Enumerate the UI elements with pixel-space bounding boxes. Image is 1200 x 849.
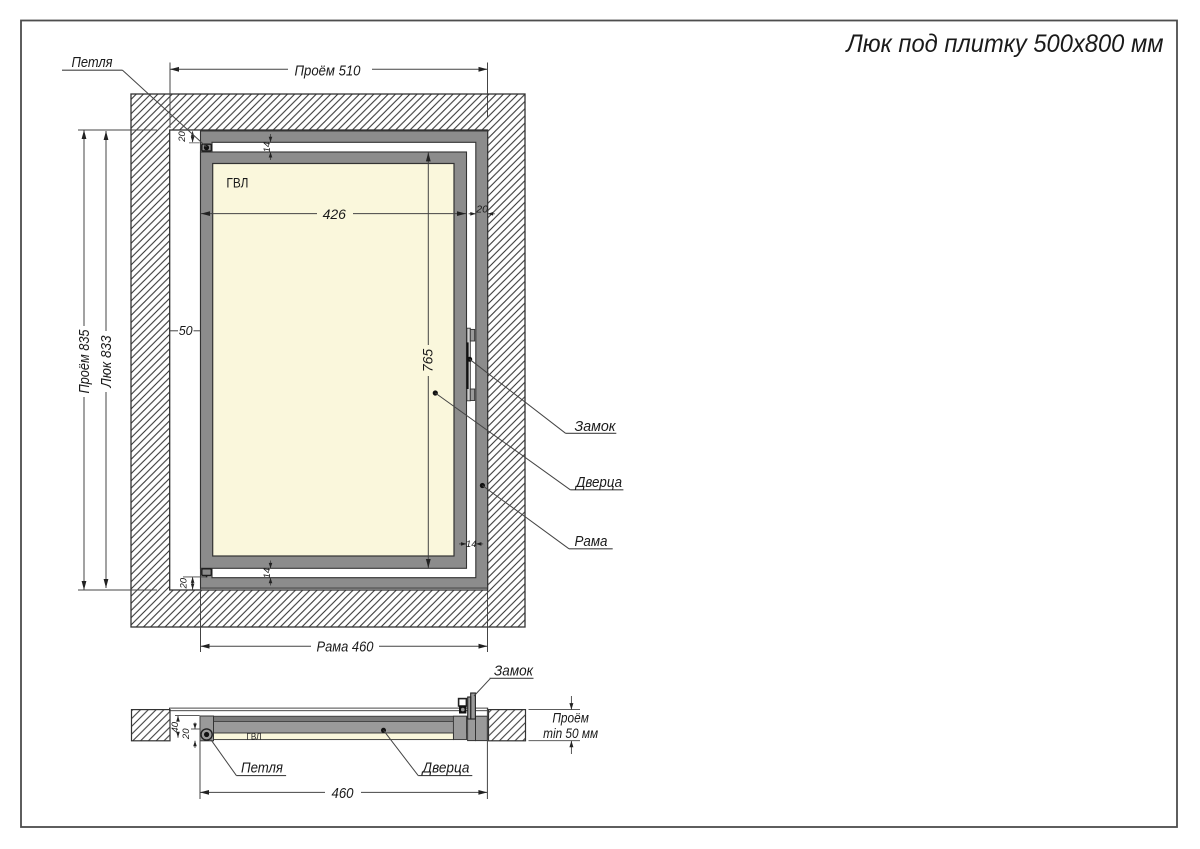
svg-text:ГВЛ: ГВЛ <box>226 175 248 190</box>
svg-text:Дверца: Дверца <box>574 474 622 491</box>
svg-text:Петля: Петля <box>241 760 283 777</box>
svg-text:Дверца: Дверца <box>421 760 470 777</box>
svg-text:Рама: Рама <box>575 533 608 550</box>
svg-text:40: 40 <box>170 721 181 732</box>
svg-text:Люк 833: Люк 833 <box>99 336 115 389</box>
svg-text:50: 50 <box>179 324 193 338</box>
svg-text:14: 14 <box>262 568 273 579</box>
svg-text:20: 20 <box>475 204 488 216</box>
svg-text:426: 426 <box>323 206 347 222</box>
svg-text:min 50 мм: min 50 мм <box>543 726 598 741</box>
svg-text:Люк под плитку 500х800 мм: Люк под плитку 500х800 мм <box>845 30 1164 58</box>
svg-text:ГВЛ: ГВЛ <box>247 731 262 741</box>
svg-text:Проём: Проём <box>552 711 589 726</box>
svg-text:765: 765 <box>420 349 436 373</box>
svg-text:Проём 510: Проём 510 <box>295 64 361 80</box>
svg-text:Рама 460: Рама 460 <box>317 640 374 656</box>
svg-text:20: 20 <box>179 577 190 589</box>
svg-text:Петля: Петля <box>72 54 113 71</box>
svg-text:Замок: Замок <box>494 663 534 680</box>
svg-text:Проём 835: Проём 835 <box>77 329 93 394</box>
svg-text:14: 14 <box>466 539 477 550</box>
svg-text:14: 14 <box>262 142 273 153</box>
svg-text:Замок: Замок <box>575 418 617 435</box>
svg-text:20: 20 <box>181 728 192 740</box>
svg-text:460: 460 <box>332 785 355 802</box>
svg-text:20: 20 <box>177 131 188 143</box>
